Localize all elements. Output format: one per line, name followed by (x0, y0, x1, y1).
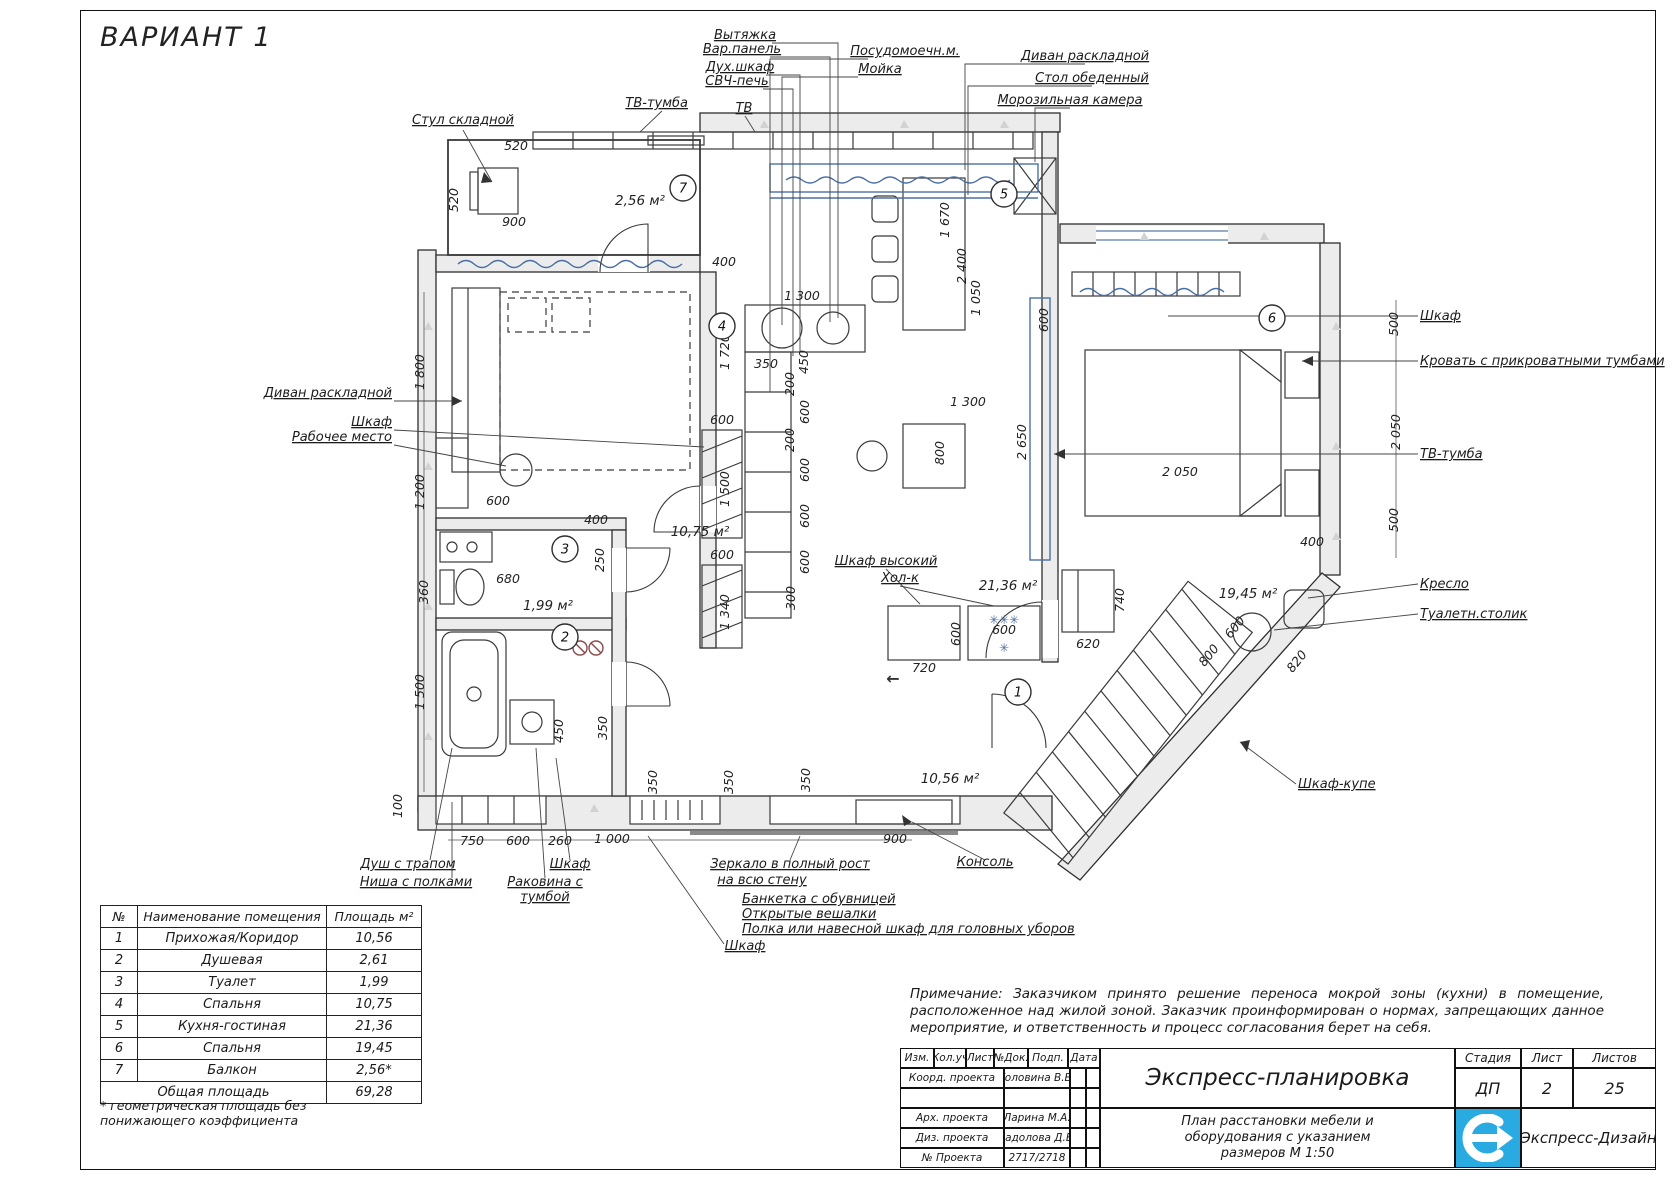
dimension-label: 2 650 (1014, 424, 1029, 460)
dimension-label: 820 (1283, 647, 1310, 675)
dimension-label: 200 (782, 372, 797, 396)
titleblock-empty-cell (1086, 1088, 1100, 1108)
area-label: 2,56 м² (615, 193, 666, 209)
titleblock-empty-cell (1070, 1128, 1086, 1148)
dimension-label: 1 670 (937, 202, 952, 238)
callout-label: Шкаф (1420, 309, 1461, 324)
dimension-label: 600 (710, 412, 734, 427)
dimension-label: 720 (912, 660, 936, 675)
note-text: Примечание: Заказчиком принято решение п… (910, 986, 1604, 1037)
dimension-label: 600 (797, 504, 812, 528)
callout-label: Кресло (1420, 577, 1469, 592)
dimension-label: 500 (1386, 312, 1401, 336)
table-cell: 1 (101, 928, 138, 950)
plan-symbol: ✳ (999, 641, 1009, 655)
plan-dimensions: 5205209001 8001 2003601 5001006004006802… (390, 138, 1403, 848)
table-cell: Спальня (138, 994, 327, 1016)
dimension-label: 600 (948, 622, 963, 646)
table-footnote: * геометрическая площадь без понижающего… (100, 1098, 400, 1128)
door-gaps (598, 226, 1228, 706)
room-marker-number: 1 (1014, 686, 1022, 701)
dimension-label: 360 (416, 580, 431, 604)
dimension-label: 600 (797, 458, 812, 482)
room-marker-number: 6 (1268, 312, 1276, 327)
dimension-label: 1 300 (784, 288, 820, 303)
titleblock-name-cell: Ларина М.А. (1004, 1108, 1070, 1128)
dimension-label: 750 (460, 833, 484, 848)
callout-label: ТВ-тумба (625, 96, 688, 111)
callout-label: Вытяжка (714, 28, 776, 43)
dimension-label: 740 (1112, 588, 1127, 612)
dimension-label: 1 200 (412, 474, 427, 510)
titleblock-name-cell: Головина В.В. (1004, 1068, 1070, 1088)
table-cell: 7 (101, 1060, 138, 1082)
titleblock-name-cell (1004, 1088, 1070, 1108)
table-cell: Туалет (138, 972, 327, 994)
dimension-label: 260 (548, 833, 572, 848)
stage-label: Стадия (1455, 1048, 1521, 1068)
dimension-label: 800 (1195, 641, 1222, 669)
table-row: 5Кухня-гостиная21,36 (101, 1016, 422, 1038)
dimension-label: 350 (645, 770, 660, 794)
table-cell: Спальня (138, 1038, 327, 1060)
dimension-label: 600 (710, 547, 734, 562)
callout-label: Дух.шкаф (705, 60, 775, 75)
callout-label: Рабочее место (292, 430, 392, 445)
callout-label: СВЧ-печь (705, 74, 768, 89)
dimension-label: 400 (1300, 534, 1324, 549)
dimension-label: 1 800 (412, 354, 427, 390)
titleblock-header-cell: Лист (966, 1048, 994, 1068)
dimension-label: 1 000 (594, 831, 630, 846)
dimension-label: 600 (506, 833, 530, 848)
dimension-label: 520 (446, 188, 461, 212)
dimension-label: 100 (390, 794, 405, 818)
callout-label: Шкаф-купе (1298, 777, 1376, 792)
titleblock-empty-cell (1086, 1128, 1100, 1148)
titleblock-header-cell: Изм. (900, 1048, 934, 1068)
callout-label: Стол обеденный (1035, 71, 1149, 86)
titleblock-empty-cell (1070, 1148, 1086, 1168)
table-header-cell: № (101, 906, 138, 928)
dimension-label: 620 (1076, 636, 1100, 651)
valves (573, 641, 603, 655)
table-cell: 3 (101, 972, 138, 994)
table-cell: 6 (101, 1038, 138, 1060)
sheets-value: 25 (1573, 1068, 1656, 1108)
table-cell: 10,75 (327, 994, 422, 1016)
dimension-label: 400 (712, 254, 736, 269)
room-marker-number: 7 (679, 182, 688, 197)
dimension-label: 350 (754, 356, 778, 371)
callout-label: Морозильная камера (998, 93, 1143, 108)
titleblock-header-cell: Дата (1068, 1048, 1100, 1068)
titleblock-role-cell (900, 1088, 1004, 1108)
callout-label: Стул складной (412, 113, 514, 128)
callout-label: Диван раскладной (1020, 49, 1149, 64)
table-cell: 2 (101, 950, 138, 972)
titleblock-role-cell: Коорд. проекта (900, 1068, 1004, 1088)
callout-label: Туалетн.столик (1420, 607, 1528, 622)
dimension-label: 300 (783, 586, 798, 610)
room-marker-number: 3 (561, 543, 569, 558)
area-label: 1,99 м² (523, 598, 574, 614)
company-name: Экспресс-Дизайн (1521, 1108, 1656, 1168)
table-cell: 19,45 (327, 1038, 422, 1060)
room-marker-number: 2 (561, 631, 569, 646)
area-label: 19,45 м² (1219, 586, 1278, 602)
rooms-table: №Наименование помещенияПлощадь м²1Прихож… (100, 905, 422, 1104)
dimension-label: 900 (883, 831, 907, 846)
dimension-label: 450 (796, 350, 811, 374)
project-title: Экспресс-планировка (1100, 1048, 1455, 1108)
table-header-row: №Наименование помещенияПлощадь м² (101, 906, 422, 928)
callout-label: Шкаф (550, 857, 591, 872)
table-row: 2Душевая2,61 (101, 950, 422, 972)
table-cell: 5 (101, 1016, 138, 1038)
sheets-label: Листов (1573, 1048, 1656, 1068)
titleblock-role-cell: Диз. проекта (900, 1128, 1004, 1148)
titleblock-empty-cell (1086, 1108, 1100, 1128)
dimension-label: 400 (584, 512, 608, 527)
table-cell: 4 (101, 994, 138, 1016)
table-row: 6Спальня19,45 (101, 1038, 422, 1060)
dimension-label: 680 (496, 571, 520, 586)
titleblock-name-cell: Кадолова Д.В. (1004, 1128, 1070, 1148)
table-row: 4Спальня10,75 (101, 994, 422, 1016)
callout-label: Душ с трапом (359, 857, 455, 872)
drawing-sheet: ВАРИАНТ 1 (0, 0, 1680, 1187)
dimension-label: 200 (782, 428, 797, 452)
callout-label: Мойка (858, 62, 901, 77)
table-cell: Душевая (138, 950, 327, 972)
callout-label: Раковина с (507, 875, 582, 890)
dimension-label: 1 500 (717, 471, 732, 507)
dimension-label: 500 (1386, 508, 1401, 532)
sheet-value: 2 (1521, 1068, 1573, 1108)
area-label: 21,36 м² (979, 578, 1038, 594)
dimension-label: 800 (932, 441, 947, 465)
callout-label: Полка или навесной шкаф для головных убо… (742, 922, 1075, 937)
table-header-cell: Площадь м² (327, 906, 422, 928)
dimension-label: 2 050 (1162, 464, 1198, 479)
plan-symbol: ← (886, 669, 899, 688)
room-marker-number: 5 (1000, 188, 1008, 203)
callout-label: Шкаф (725, 939, 766, 954)
titleblock-header-cell: Подп. (1028, 1048, 1068, 1068)
callout-label: на всю стену (717, 873, 807, 888)
area-label: 10,75 м² (671, 524, 730, 540)
callout-label: Вар.панель (703, 42, 781, 57)
dimension-label: 2 050 (1388, 414, 1403, 450)
table-row: 3Туалет1,99 (101, 972, 422, 994)
titleblock-empty-cell (1086, 1068, 1100, 1088)
callout-label: Консоль (957, 855, 1014, 870)
titleblock-header-cell: Кол.уч (934, 1048, 966, 1068)
table-cell: 2,61 (327, 950, 422, 972)
callout-label: ТВ (736, 101, 753, 116)
titleblock-role-cell: Арх. проекта (900, 1108, 1004, 1128)
dimension-label: 600 (797, 550, 812, 574)
dimension-label: 600 (1221, 613, 1248, 641)
callout-label: тумбой (520, 890, 570, 905)
table-row: 7Балкон2,56* (101, 1060, 422, 1082)
table-header-cell: Наименование помещения (138, 906, 327, 928)
callout-label: Хол-к (880, 571, 919, 586)
callout-label: Кровать с прикроватными тумбами (1420, 354, 1665, 369)
dimension-label: 600 (1036, 308, 1051, 332)
dimension-label: 450 (551, 719, 566, 743)
drawing-title: План расстановки мебели и оборудования с… (1100, 1108, 1455, 1168)
dimension-label: 250 (592, 548, 607, 572)
dimension-label: 520 (504, 138, 528, 153)
plan-areas: 2,56 м²10,75 м²1,99 м²21,36 м²19,45 м²10… (523, 193, 1278, 787)
logo-icon (1461, 1114, 1515, 1162)
titleblock-empty-cell (1086, 1148, 1100, 1168)
table-cell: Прихожая/Коридор (138, 928, 327, 950)
titleblock-header-cell: №Док. (994, 1048, 1028, 1068)
callout-label: Ниша с полками (360, 875, 472, 890)
dimension-label: 350 (798, 768, 813, 792)
callout-label: ТВ-тумба (1420, 447, 1483, 462)
titleblock-name-cell: 2717/2718 (1004, 1148, 1070, 1168)
table-row: 1Прихожая/Коридор10,56 (101, 928, 422, 950)
table-cell: 1,99 (327, 972, 422, 994)
callout-label: Диван раскладной (263, 386, 392, 401)
callout-label: Зеркало в полный рост (710, 857, 870, 872)
company-logo (1455, 1108, 1521, 1168)
callout-label: Банкетка с обувницей (742, 892, 896, 907)
titleblock-empty-cell (1070, 1108, 1086, 1128)
room-marker-number: 4 (718, 320, 726, 335)
callout-label: Посудомоечн.м. (850, 44, 960, 59)
stage-value: ДП (1455, 1068, 1521, 1108)
callout-label: Шкаф высокий (835, 554, 938, 569)
dimension-label: 350 (595, 716, 610, 740)
callout-label: Шкаф (351, 415, 392, 430)
table-cell: 10,56 (327, 928, 422, 950)
dimension-label: 1 340 (717, 594, 732, 630)
table-cell: Кухня-гостиная (138, 1016, 327, 1038)
dimension-label: 350 (721, 770, 736, 794)
titleblock-role-cell: № Проекта (900, 1148, 1004, 1168)
area-label: 10,56 м² (921, 771, 980, 787)
dimension-label: 600 (486, 493, 510, 508)
titleblock-empty-cell (1070, 1068, 1086, 1088)
table-cell: 2,56* (327, 1060, 422, 1082)
plan-symbol: ✳✳✳ (989, 613, 1019, 627)
table-cell: 21,36 (327, 1016, 422, 1038)
dimension-label: 1 500 (412, 674, 427, 710)
dimension-label: 1 300 (950, 394, 986, 409)
table-cell: Балкон (138, 1060, 327, 1082)
sheet-label: Лист (1521, 1048, 1573, 1068)
titleblock-empty-cell (1070, 1088, 1086, 1108)
dimension-label: 900 (502, 214, 526, 229)
dimension-label: 1 050 (968, 280, 983, 316)
dimension-label: 2 400 (954, 248, 969, 284)
callout-label: Открытые вешалки (742, 907, 876, 922)
dimension-label: 600 (797, 400, 812, 424)
